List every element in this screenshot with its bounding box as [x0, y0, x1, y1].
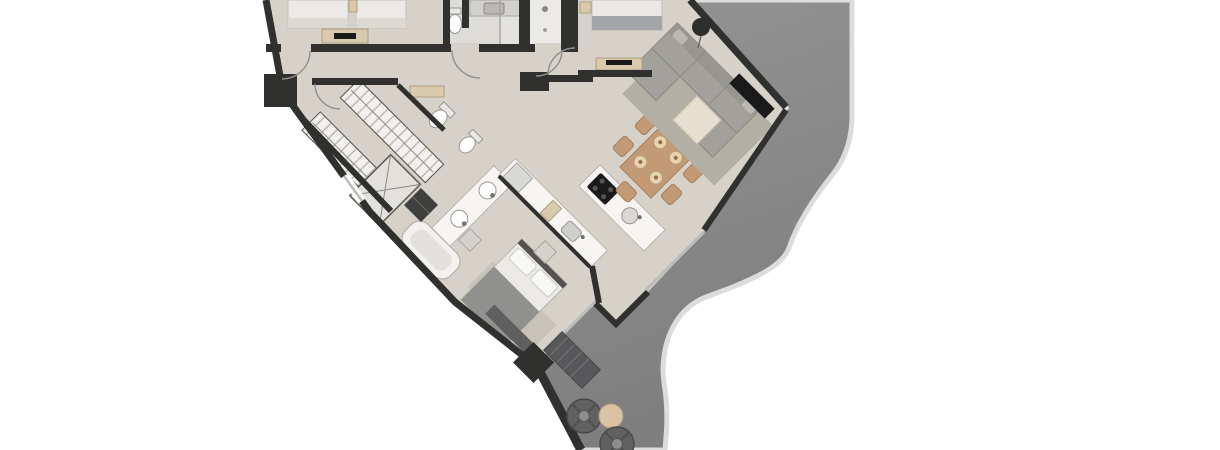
top-corridor-wall — [266, 44, 578, 52]
toilet — [449, 15, 462, 34]
sink — [484, 3, 504, 14]
round-side-table — [599, 404, 623, 428]
bed-blanket — [592, 16, 662, 30]
door-gap — [535, 43, 561, 53]
nightstand — [580, 2, 591, 13]
corner-column — [264, 74, 297, 107]
floor-plan-screenshot — [0, 0, 1220, 450]
shower-drain — [543, 28, 547, 32]
tv — [606, 60, 632, 65]
shower-head — [542, 6, 548, 12]
hall-console — [410, 86, 444, 97]
closet-wall — [312, 78, 398, 85]
shower-room-wall — [561, 0, 578, 46]
toilet-nook-wall — [462, 0, 469, 28]
floor-plan-svg — [0, 0, 1220, 450]
bathroom-wall — [519, 0, 530, 46]
bathroom-wall — [443, 0, 450, 46]
tv — [334, 33, 356, 39]
nightstand — [349, 0, 357, 12]
lounge-chair — [567, 399, 601, 433]
bedroom-wall — [578, 70, 652, 77]
door-gap — [451, 43, 479, 53]
door-gap — [281, 43, 311, 53]
